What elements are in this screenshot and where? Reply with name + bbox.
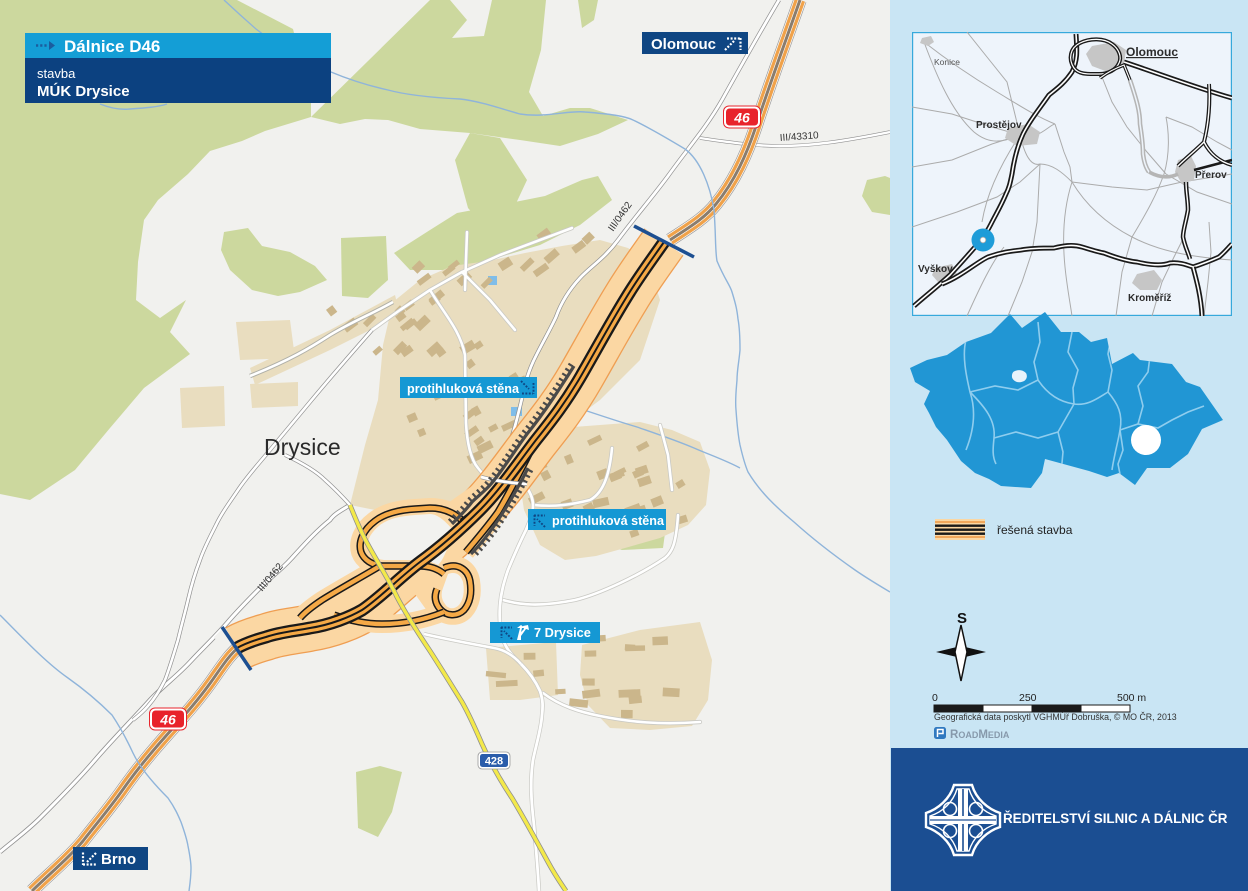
- svg-text:MÚK Drysice: MÚK Drysice: [37, 82, 130, 100]
- svg-text:Brno: Brno: [101, 851, 136, 868]
- svg-text:Konice: Konice: [934, 57, 960, 67]
- svg-text:protihluková stěna: protihluková stěna: [552, 514, 665, 528]
- svg-text:500 m: 500 m: [1117, 692, 1146, 704]
- svg-text:Olomouc: Olomouc: [1126, 45, 1178, 59]
- svg-text:7 Drysice: 7 Drysice: [534, 625, 591, 640]
- svg-text:46: 46: [733, 110, 750, 126]
- svg-text:Přerov: Přerov: [1195, 170, 1227, 181]
- svg-text:46: 46: [159, 712, 176, 728]
- svg-text:řešená stavba: řešená stavba: [997, 523, 1073, 537]
- svg-text:Prostějov: Prostějov: [976, 120, 1022, 131]
- svg-text:S: S: [957, 610, 967, 627]
- svg-text:protihluková stěna: protihluková stěna: [407, 382, 520, 396]
- svg-text:stavba: stavba: [37, 66, 76, 81]
- svg-text:Vyškov: Vyškov: [918, 264, 953, 275]
- svg-text:Kroměříž: Kroměříž: [1128, 293, 1171, 304]
- svg-text:250: 250: [1019, 692, 1037, 704]
- svg-text:Drysice: Drysice: [264, 434, 341, 460]
- svg-text:0: 0: [932, 692, 938, 704]
- svg-text:ROADMEDIA: ROADMEDIA: [950, 729, 1010, 741]
- svg-text:Olomouc: Olomouc: [651, 36, 716, 53]
- svg-text:428: 428: [485, 756, 503, 768]
- svg-text:Dálnice D46: Dálnice D46: [64, 37, 160, 56]
